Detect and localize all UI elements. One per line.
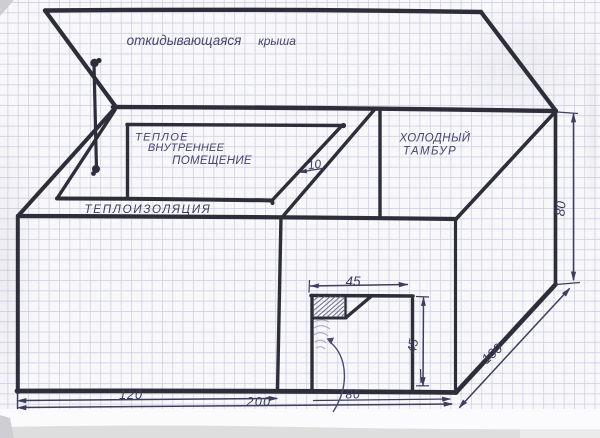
- svg-text:крыша: крыша: [258, 34, 296, 48]
- svg-text:ХОЛОДНЫЙ: ХОЛОДНЫЙ: [398, 132, 470, 145]
- svg-text:120: 120: [119, 388, 143, 402]
- svg-text:80: 80: [346, 388, 361, 402]
- svg-text:45: 45: [345, 274, 361, 289]
- svg-text:ТЕПЛОИЗОЛЯЦИЯ: ТЕПЛОИЗОЛЯЦИЯ: [84, 204, 211, 216]
- svg-text:ВНУТРЕННЕЕ: ВНУТРЕННЕЕ: [148, 142, 225, 154]
- svg-text:ТАМБУР: ТАМБУР: [403, 146, 457, 158]
- svg-text:откидывающаяся: откидывающаяся: [127, 33, 242, 48]
- svg-text:10: 10: [307, 157, 322, 173]
- svg-text:80: 80: [552, 200, 568, 217]
- svg-text:ПОМЕЩЕНИЕ: ПОМЕЩЕНИЕ: [172, 155, 252, 167]
- svg-text:200: 200: [245, 395, 271, 409]
